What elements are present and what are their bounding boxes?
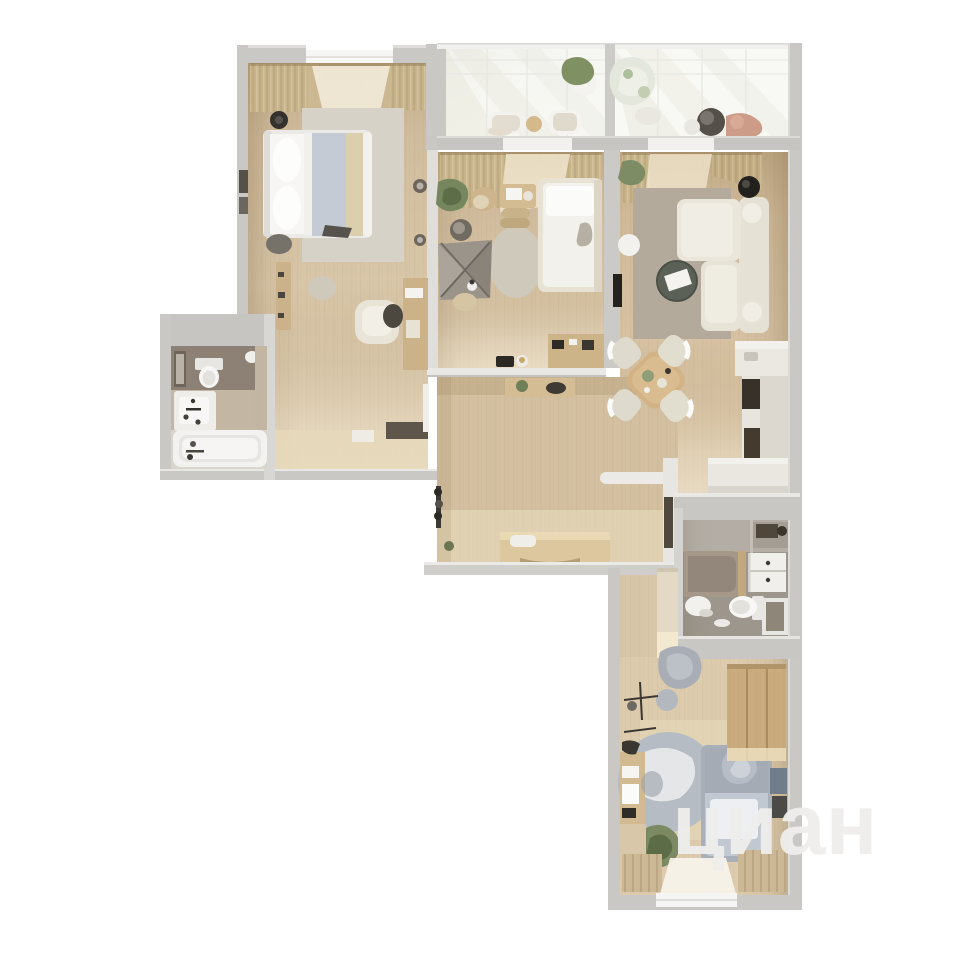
svg-text:циан: циан (672, 777, 878, 873)
